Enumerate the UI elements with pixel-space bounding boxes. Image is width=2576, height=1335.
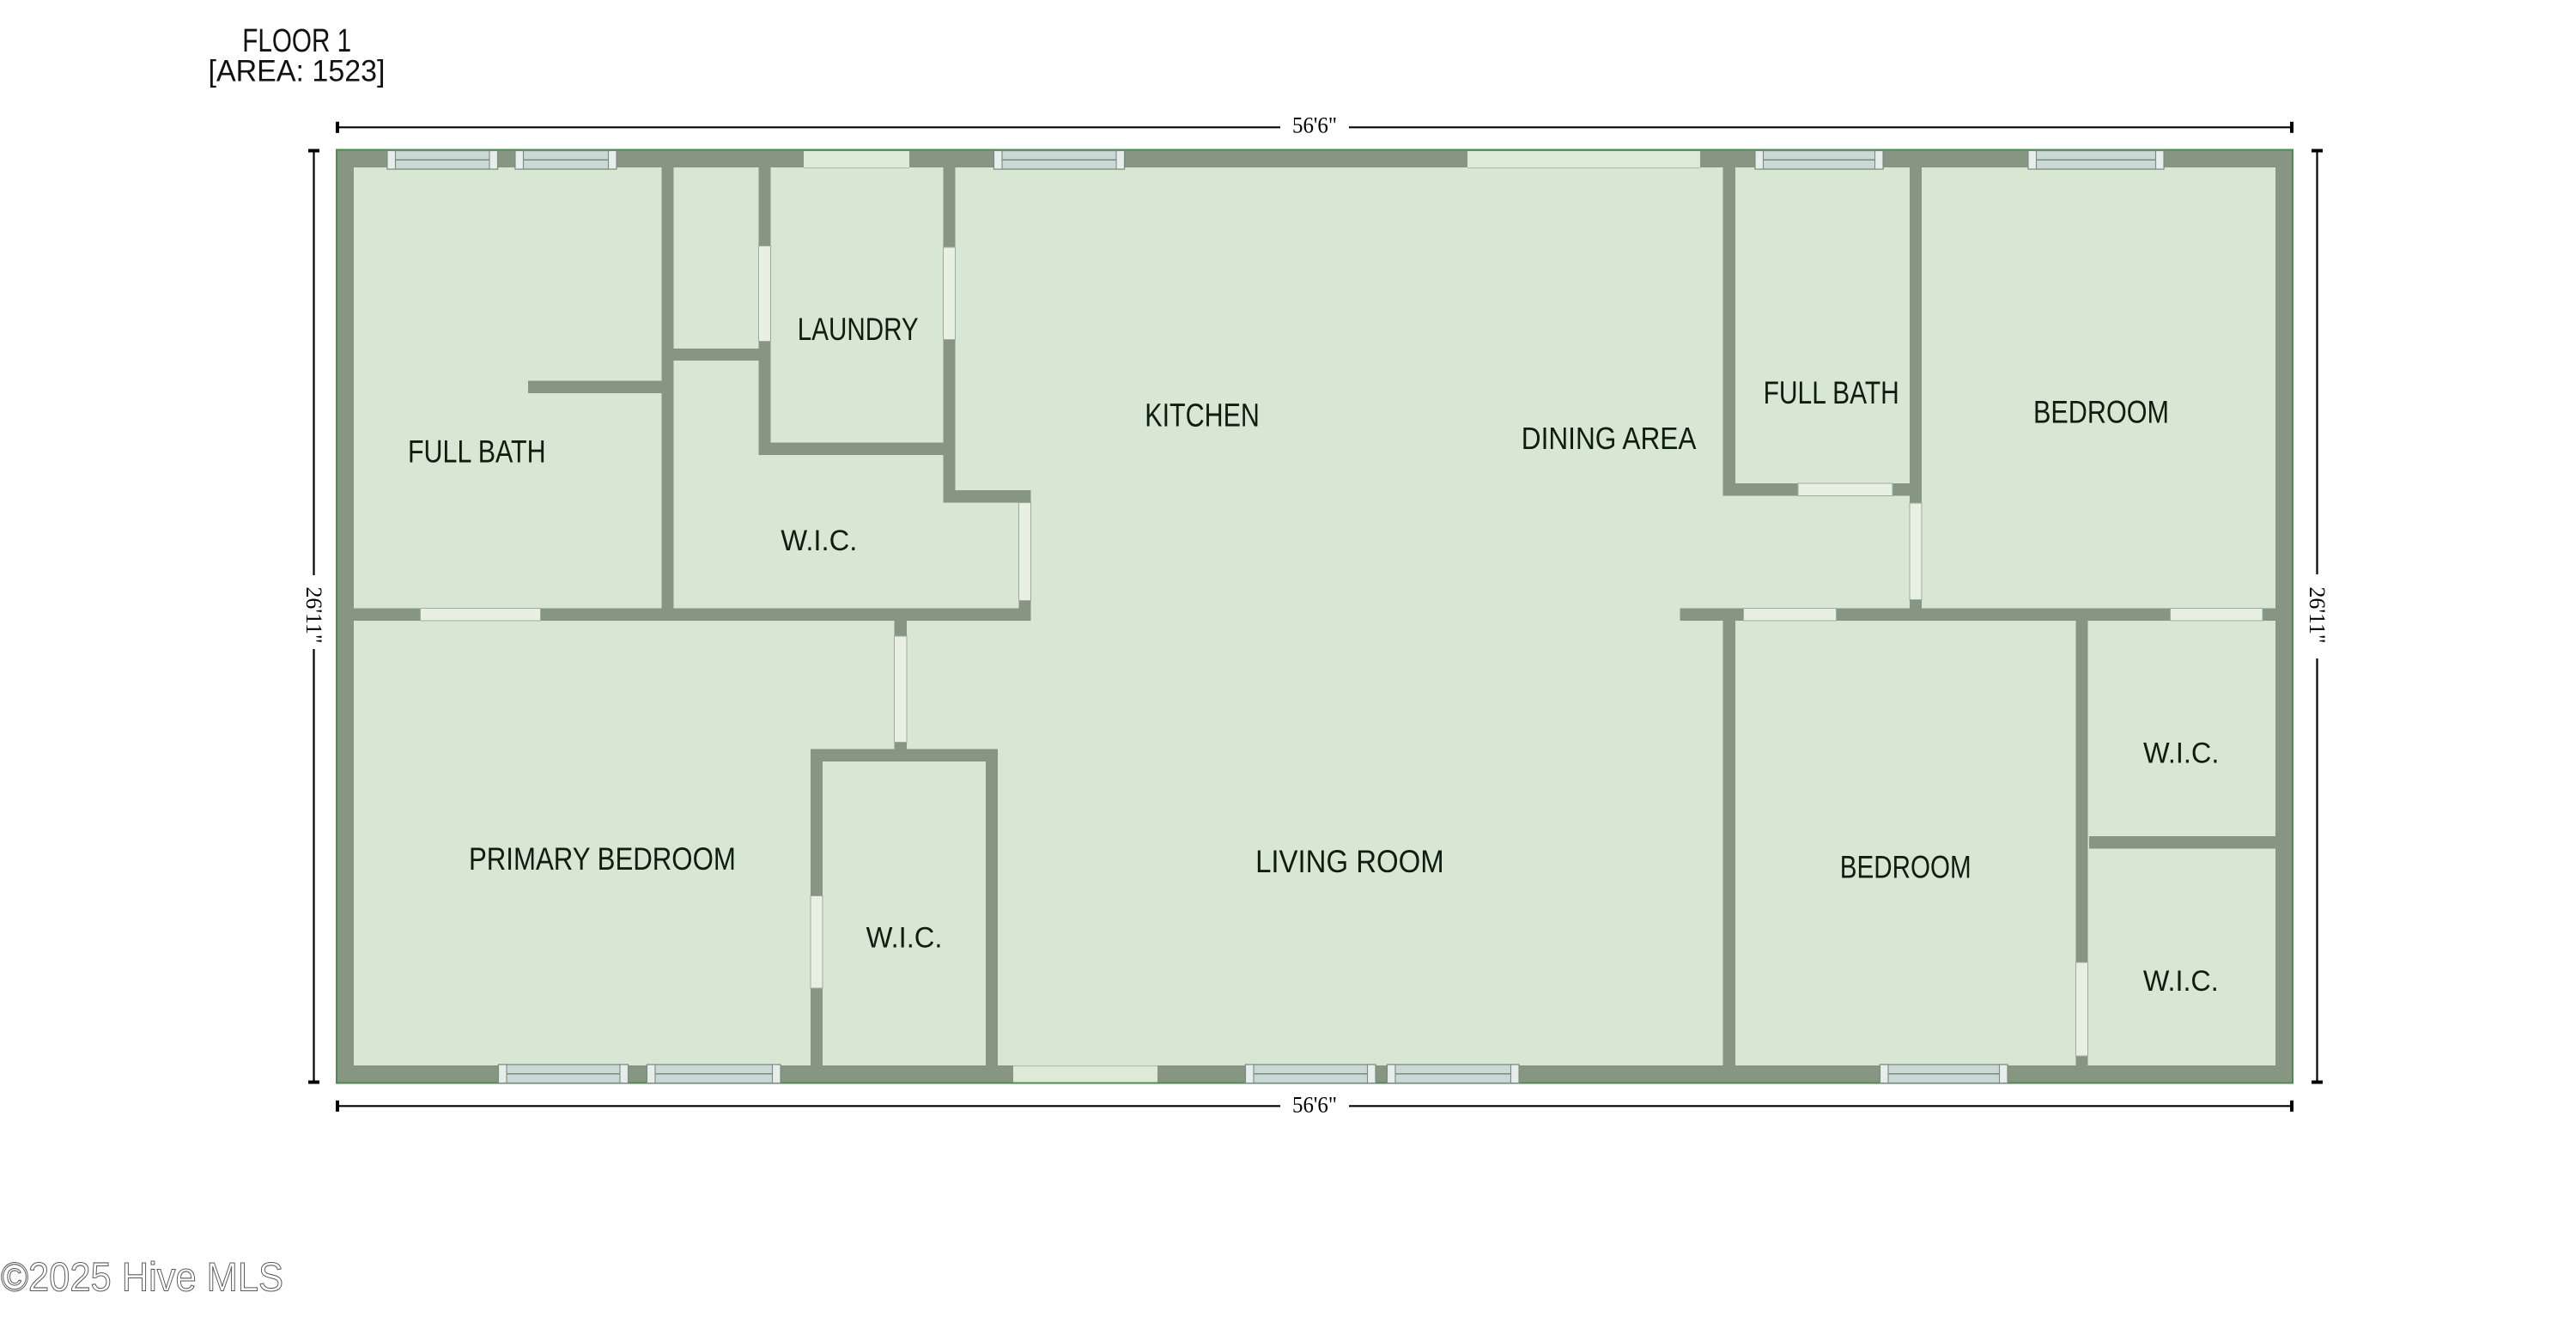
svg-text:FULL BATH: FULL BATH <box>1764 375 1899 410</box>
svg-text:56'6": 56'6" <box>1292 1093 1337 1118</box>
svg-text:26'11": 26'11" <box>2305 587 2330 644</box>
svg-text:W.I.C.: W.I.C. <box>2143 965 2219 998</box>
svg-text:©2025 Hive MLS: ©2025 Hive MLS <box>1 1254 283 1300</box>
svg-text:LIVING ROOM: LIVING ROOM <box>1255 844 1444 879</box>
svg-text:26'11": 26'11" <box>301 587 326 644</box>
svg-text:56'6": 56'6" <box>1292 113 1337 138</box>
svg-text:BEDROOM: BEDROOM <box>2033 395 2169 430</box>
svg-text:[AREA: 1523]: [AREA: 1523] <box>209 55 386 88</box>
svg-text:W.I.C.: W.I.C. <box>866 922 943 955</box>
svg-text:BEDROOM: BEDROOM <box>1840 850 1971 885</box>
svg-text:KITCHEN: KITCHEN <box>1145 398 1260 434</box>
svg-text:DINING AREA: DINING AREA <box>1522 421 1697 456</box>
svg-text:W.I.C.: W.I.C. <box>2143 737 2219 769</box>
svg-text:LAUNDRY: LAUNDRY <box>798 311 919 347</box>
svg-text:W.I.C.: W.I.C. <box>781 525 857 557</box>
svg-text:FULL BATH: FULL BATH <box>408 434 546 469</box>
svg-text:PRIMARY BEDROOM: PRIMARY BEDROOM <box>469 841 736 877</box>
